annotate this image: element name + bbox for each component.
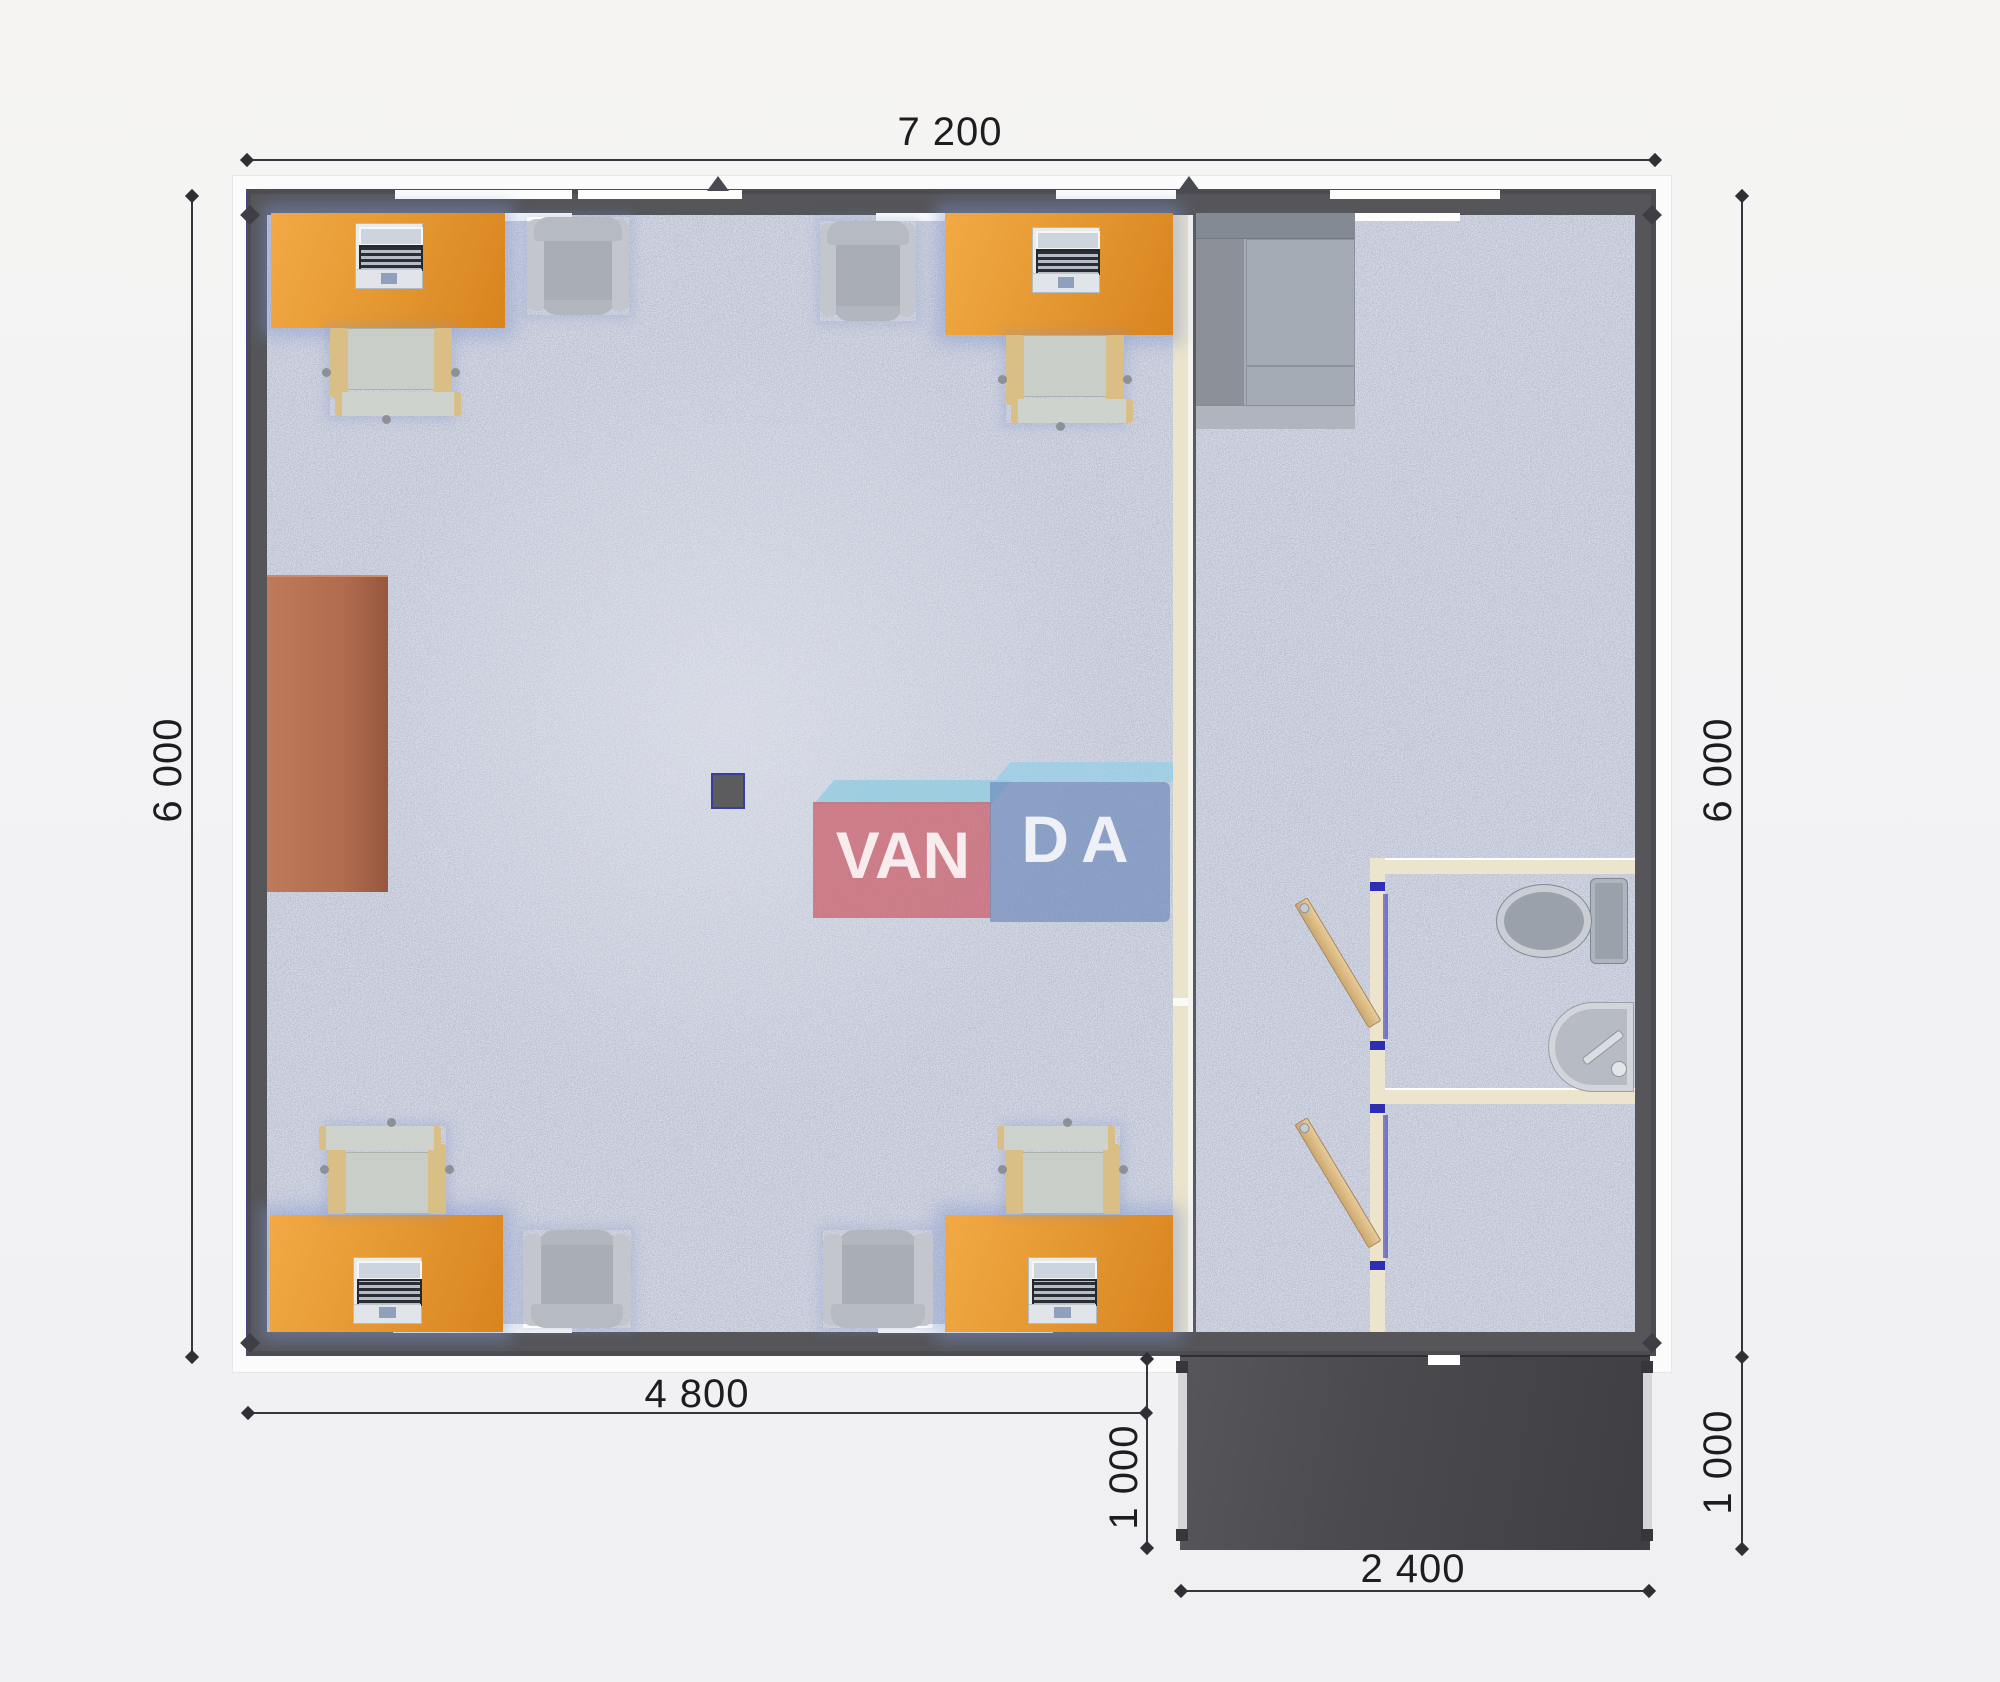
dim-label-right: 6 000 (1698, 690, 1738, 850)
sofa-cushion-2 (1246, 366, 1355, 406)
vanda-watermark: VAN DA (808, 754, 1172, 920)
sofa-backrest (1196, 213, 1248, 428)
laptop-icon (353, 1257, 422, 1324)
bathroom-wall-top (1370, 858, 1635, 874)
armchair-bottom-1 (523, 1230, 631, 1328)
office-chair-top-left (330, 328, 452, 416)
office-chair-bottom-right (1006, 1126, 1120, 1214)
dim-line-right (1741, 195, 1743, 1550)
laptop-icon (355, 223, 423, 289)
porch-deck (1180, 1355, 1650, 1550)
faucet-knob (1611, 1061, 1627, 1077)
door-jamb-lower-bottom (1370, 1261, 1385, 1270)
window-top-1 (395, 190, 572, 199)
partition-wall (1173, 215, 1188, 1332)
dim-label-porch-left: 1 000 (1104, 1397, 1144, 1557)
dim-tick (1174, 1584, 1188, 1598)
toilet-tank (1590, 878, 1628, 964)
dim-tick (240, 153, 254, 167)
door-frame-accent-upper (1383, 894, 1388, 1039)
door-jamb-upper-bottom (1370, 1041, 1385, 1050)
sofa-cushion-1 (1246, 239, 1355, 366)
porch-post (1176, 1529, 1188, 1541)
dim-tick (1735, 1542, 1749, 1556)
dim-tick (241, 1406, 255, 1420)
window-top-4 (1330, 190, 1500, 199)
office-chair-top-right (1006, 335, 1124, 423)
dim-tick (1735, 1350, 1749, 1364)
toilet-bowl (1496, 884, 1592, 958)
support-column (711, 773, 745, 809)
laptop-icon (1028, 1257, 1097, 1324)
porch-rail-left (1178, 1363, 1187, 1541)
logo-bevel-left (814, 780, 1012, 804)
window-top-3 (1056, 190, 1176, 199)
dim-label-bottom: 4 800 (597, 1374, 797, 1414)
window-top-2 (578, 190, 742, 199)
porch-post (1641, 1529, 1653, 1541)
floor-plan-page: { "watermark": { "box_left_text": "VAN",… (0, 0, 2000, 1682)
dim-tick (1735, 189, 1749, 203)
dim-label-top: 7 200 (850, 112, 1050, 152)
dim-label-porch-right: 1 000 (1698, 1382, 1738, 1542)
floor-center-highlight (340, 330, 1120, 1110)
meeting-table (267, 575, 388, 892)
dim-line-left (191, 195, 193, 1358)
dim-tick (185, 1350, 199, 1364)
door-jamb-upper-top (1370, 882, 1385, 891)
partition-joint (1173, 998, 1188, 1006)
sofa-armrest-bottom (1196, 405, 1355, 429)
door-frame-accent-lower (1383, 1115, 1388, 1258)
door-jamb-lower-top (1370, 1104, 1385, 1113)
sofa-armrest-top (1196, 213, 1355, 239)
dim-tick (185, 189, 199, 203)
laptop-icon (1032, 227, 1100, 293)
logo-text-da: DA (994, 806, 1168, 872)
door-handle-icon (1298, 1121, 1312, 1135)
porch-post (1176, 1361, 1188, 1373)
door-handle-icon (1298, 901, 1312, 915)
dim-tick (1642, 1584, 1656, 1598)
dim-label-porch-width: 2 400 (1313, 1549, 1513, 1589)
module-marker-icon (707, 176, 729, 191)
dim-line-porch-left (1146, 1358, 1148, 1548)
sink-icon (1548, 1002, 1634, 1092)
toilet-icon (1496, 874, 1628, 966)
dim-label-left: 6 000 (148, 690, 188, 850)
armchair-bottom-2 (823, 1230, 933, 1328)
module-marker-icon (1178, 176, 1200, 191)
entrance-threshold (1428, 1355, 1460, 1365)
logo-bevel-right (994, 762, 1189, 782)
porch-post (1641, 1361, 1653, 1373)
dim-line-top (247, 159, 1655, 161)
logo-text-van: VAN (816, 822, 990, 888)
armchair-top-1 (527, 217, 629, 315)
armchair-top-2 (820, 221, 916, 321)
office-chair-bottom-left (328, 1126, 446, 1214)
porch-rail-right (1643, 1363, 1652, 1541)
sofa (1196, 213, 1355, 428)
dim-tick (1648, 153, 1662, 167)
